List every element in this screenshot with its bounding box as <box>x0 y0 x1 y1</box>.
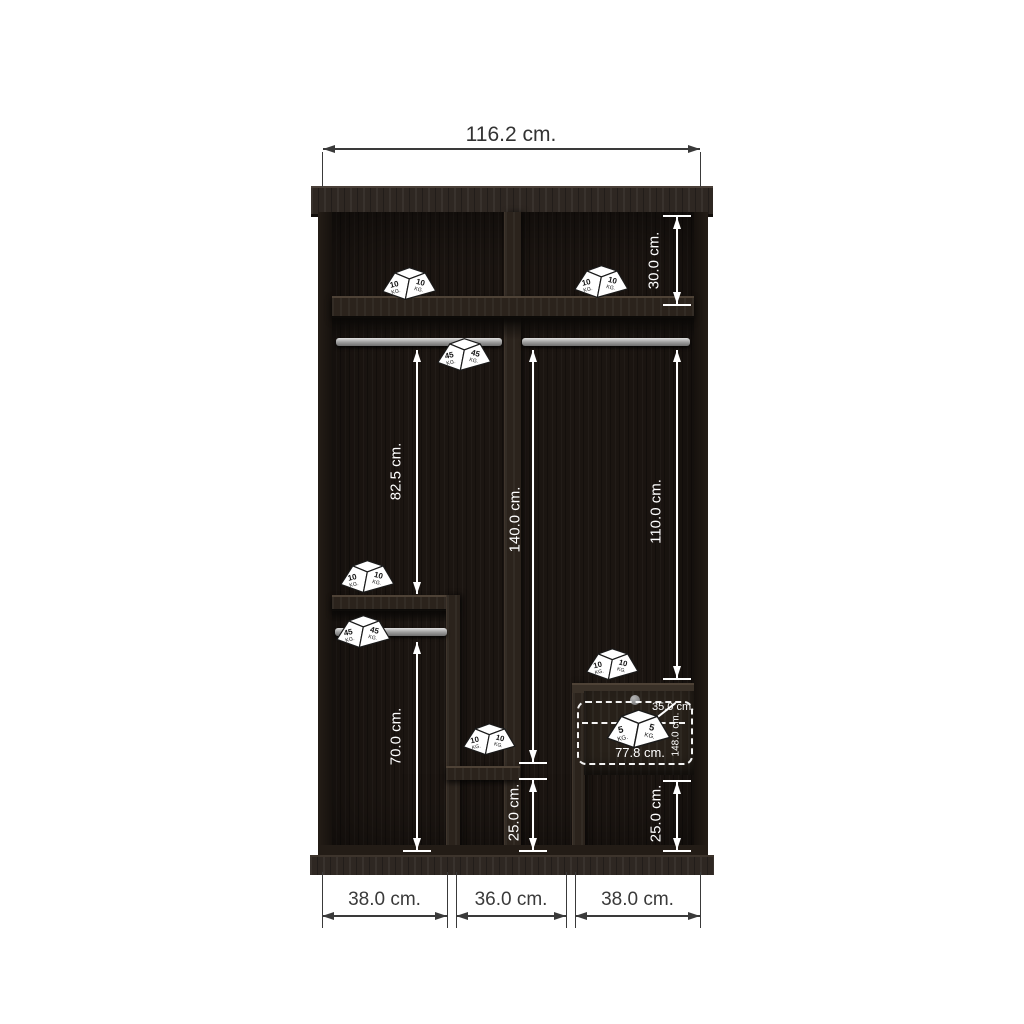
dim-top-shelf-height-tick-bottom <box>663 304 691 306</box>
hanging-rail-right <box>522 338 690 346</box>
dim-middle-hang-arrow-down <box>529 750 537 762</box>
main-shelf-shadow <box>332 316 694 340</box>
dim-bottom-right-label: 38.0 cm. <box>568 889 708 911</box>
ext-overall-right <box>700 152 701 187</box>
overall-width-label: 116.2 cm. <box>431 123 591 147</box>
dim-bottom-left-label: 38.0 cm. <box>315 889 455 911</box>
wardrobe-dimension-diagram: 35.0 cm. 77.8 cm. 148.0 cm. 116.2 cm. 30… <box>0 0 1024 1024</box>
dim-middle-bottom-clearance-arrow-down <box>529 838 537 850</box>
dim-bottom-middle-line <box>456 915 566 917</box>
dim-right-bottom-clearance-label: 25.0 cm. <box>648 759 665 869</box>
weight-left-lower-rail-icon: 45KG.45KG. <box>329 613 395 658</box>
dim-right-hang-arrow-down <box>673 666 681 678</box>
dim-right-hang-tick-bottom <box>663 678 691 680</box>
weight-middle-shelf-icon: 10KG.10KG. <box>456 721 520 765</box>
dim-right-bottom-clearance-tick-bottom <box>663 850 691 852</box>
dim-top-shelf-height-label: 30.0 cm. <box>646 206 663 316</box>
weight-top-left-shelf-icon: 10KG.10KG. <box>375 265 441 310</box>
weight-drawer-top-icon: 10KG.10KG. <box>579 646 643 690</box>
ext-overall-left <box>322 152 323 187</box>
dim-overall-width-line <box>323 148 700 150</box>
weight-upper-rail-icon: 45KG.45KG. <box>430 336 496 381</box>
weight-top-right-shelf-icon: 10KG.10KG. <box>567 263 633 308</box>
dim-right-bottom-clearance-arrow-up <box>673 782 681 794</box>
dim-left-upper-hang-line <box>416 350 418 594</box>
dim-left-lower-hang-arrow-down <box>413 838 421 850</box>
dim-bottom-right-line <box>575 915 700 917</box>
dim-left-lower-hang-label: 70.0 cm. <box>388 682 405 792</box>
dim-top-shelf-height-arrow-up <box>673 217 681 229</box>
dim-middle-bottom-clearance-arrow-up <box>529 780 537 792</box>
dim-left-lower-hang-arrow-up <box>413 642 421 654</box>
dim-top-shelf-height-line <box>676 217 678 304</box>
dim-bottom-right-arrow-left <box>575 912 587 920</box>
left-side-wall <box>318 212 332 858</box>
dim-bottom-middle-arrow-right <box>554 912 566 920</box>
dim-bottom-left-arrow-left <box>322 912 334 920</box>
right-side-wall <box>694 212 708 858</box>
dim-top-shelf-height-tick-top <box>663 215 691 217</box>
dim-middle-bottom-clearance-tick-top <box>519 778 547 780</box>
dim-bottom-left-arrow-right <box>435 912 447 920</box>
dim-bottom-middle-label: 36.0 cm. <box>441 889 581 911</box>
dim-right-hang-arrow-up <box>673 350 681 362</box>
dim-left-upper-hang-arrow-down <box>413 582 421 594</box>
dim-right-bottom-clearance-tick-top <box>663 780 691 782</box>
dim-middle-hang-tick-bottom <box>519 762 547 764</box>
dim-bottom-middle-arrow-left <box>456 912 468 920</box>
dim-right-bottom-clearance-arrow-down <box>673 838 681 850</box>
dim-middle-bottom-clearance-tick-bottom <box>519 850 547 852</box>
dim-right-hang-label: 110.0 cm. <box>648 457 665 567</box>
weight-left-mid-shelf-icon: 10KG.10KG. <box>333 558 399 603</box>
dim-middle-bottom-clearance-label: 25.0 cm. <box>506 758 523 868</box>
weight-drawer-inside-icon: 5KG.5KG. <box>598 707 676 760</box>
dim-bottom-left-line <box>322 915 447 917</box>
dim-middle-hang-line <box>532 350 534 762</box>
dim-left-upper-hang-label: 82.5 cm. <box>388 417 405 527</box>
dim-middle-hang-label: 140.0 cm. <box>507 465 524 575</box>
dim-middle-hang-arrow-up <box>529 350 537 362</box>
dim-bottom-right-arrow-right <box>688 912 700 920</box>
dim-left-upper-hang-arrow-up <box>413 350 421 362</box>
dim-right-hang-line <box>676 350 678 678</box>
dim-left-lower-hang-line <box>416 642 418 850</box>
dim-top-shelf-height-arrow-down <box>673 292 681 304</box>
dim-overall-width-arrow-left <box>323 145 335 153</box>
dim-overall-width-arrow-right <box>688 145 700 153</box>
dim-left-lower-hang-tick-bottom <box>403 850 431 852</box>
